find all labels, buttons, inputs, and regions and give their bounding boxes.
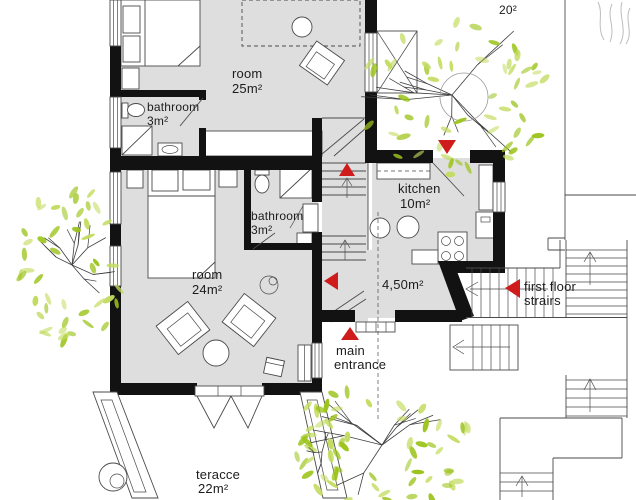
kitchen-area: 10m²	[400, 196, 431, 211]
first-floor-stairs-label-2: strairs	[524, 293, 561, 308]
wardrobe	[203, 131, 322, 156]
terrace-door	[195, 386, 264, 428]
nightstand	[219, 170, 237, 187]
shower-bathroom-top	[122, 126, 152, 155]
shower-bathroom-mid	[280, 168, 312, 198]
main-entrance-label-2: entrance	[334, 357, 386, 372]
main-entrance-door	[356, 322, 395, 332]
sideboard	[298, 345, 311, 381]
bathroom-mid-label: bathroom	[251, 209, 303, 223]
room25-label: room	[232, 66, 262, 81]
bathroom-mid-area: 3m²	[251, 223, 272, 237]
terrace-area: 22m²	[198, 481, 229, 496]
floor-plan: room 25m² bathroom 3m² bathroom 3m² kitc…	[0, 0, 636, 500]
nightstand	[122, 68, 139, 89]
garden-steps	[450, 325, 622, 500]
window	[493, 182, 505, 212]
coffee-table	[203, 340, 229, 366]
room24-area: 24m²	[192, 282, 223, 297]
main-entrance-label-1: main	[336, 343, 365, 358]
sink-bathroom-top	[158, 143, 182, 156]
kitchen-label: kitchen	[398, 181, 441, 196]
bed-room25	[121, 0, 200, 66]
pergola-post-left	[93, 392, 158, 498]
desk-chair	[292, 17, 312, 37]
room24-label: room	[192, 267, 222, 282]
window	[110, 172, 121, 224]
kitchen-counter-bottom	[412, 250, 438, 264]
window	[110, 97, 121, 148]
bed-room24	[148, 166, 215, 278]
room25-area: 25m²	[232, 81, 263, 96]
kitchen-stool	[370, 218, 390, 238]
kitchen-counter-right	[479, 165, 493, 210]
toilet-bathroom-mid	[255, 170, 269, 193]
terrace-label: teracce	[196, 467, 240, 482]
bathroom-top-area: 3m²	[147, 114, 168, 128]
upper-terrace-area: 20²	[499, 3, 517, 17]
tree-left	[15, 185, 125, 349]
window	[312, 343, 322, 378]
floor-plan-svg: room 25m² bathroom 3m² bathroom 3m² kitc…	[0, 0, 636, 500]
window	[110, 0, 121, 46]
fridge	[476, 212, 494, 238]
kitchen-counter-top	[377, 163, 430, 179]
stove	[438, 232, 467, 264]
first-floor-stairs-arrow-icon	[505, 279, 520, 298]
faint-plant	[598, 2, 630, 44]
bathroom-top-label: bathroom	[147, 100, 199, 114]
hall-area: 4,50m²	[382, 277, 424, 292]
small-chair	[264, 357, 285, 376]
first-floor-stairs-label-1: first floor	[524, 279, 577, 294]
kitchen-stool	[397, 216, 419, 238]
nightstand	[127, 170, 143, 188]
